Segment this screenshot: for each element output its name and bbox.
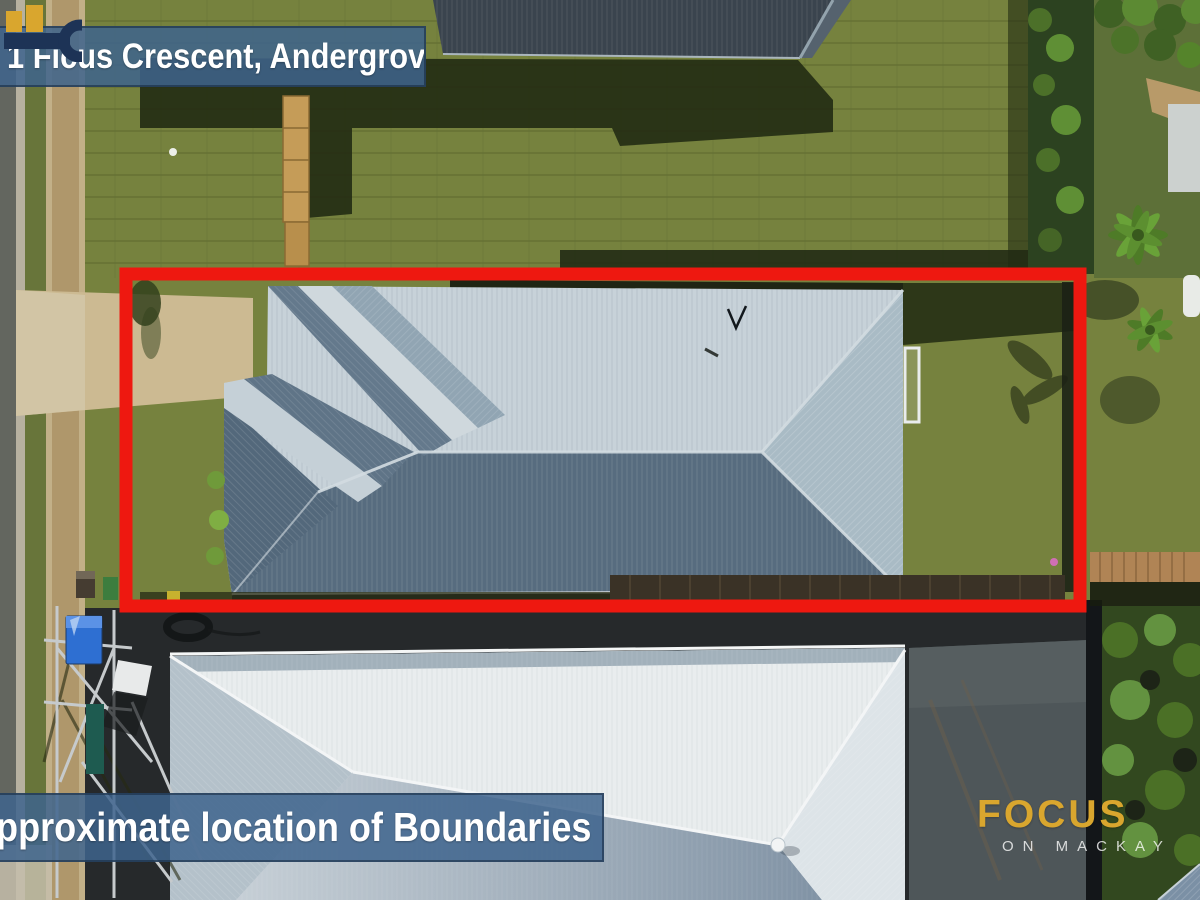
rear-fence-shadow bbox=[1086, 600, 1102, 900]
timber-deck bbox=[1090, 552, 1200, 606]
street-footpath bbox=[0, 0, 85, 900]
subject-roof bbox=[206, 286, 919, 604]
caption-banner: Approximate location of Boundaries bbox=[0, 793, 604, 862]
white-vehicle bbox=[1183, 275, 1200, 317]
neighbor-roof-top bbox=[433, 0, 851, 58]
aerial-photo bbox=[0, 0, 1200, 900]
aerial-photo-stage: 1 Ficus Crescent, Andergrove Approximate… bbox=[0, 0, 1200, 900]
timber-fence bbox=[283, 96, 309, 266]
green-bin bbox=[103, 577, 118, 600]
address-text: 1 Ficus Crescent, Andergrove bbox=[0, 37, 426, 77]
caption-text: Approximate location of Boundaries bbox=[0, 804, 591, 851]
roof-vent bbox=[771, 838, 785, 852]
driveway bbox=[16, 280, 253, 416]
pink-ball bbox=[1050, 558, 1058, 566]
portaloo bbox=[66, 616, 102, 664]
gutter-box bbox=[905, 348, 919, 422]
tarp bbox=[86, 704, 104, 774]
banana-palm bbox=[1108, 205, 1168, 265]
sprinkler-dot bbox=[169, 148, 177, 156]
hedge-strip bbox=[1008, 0, 1094, 274]
bottom-right-bushes bbox=[1102, 606, 1200, 900]
concrete-pad bbox=[909, 640, 1088, 900]
white-panel bbox=[112, 660, 152, 696]
address-banner: 1 Ficus Crescent, Andergrove bbox=[0, 26, 426, 87]
